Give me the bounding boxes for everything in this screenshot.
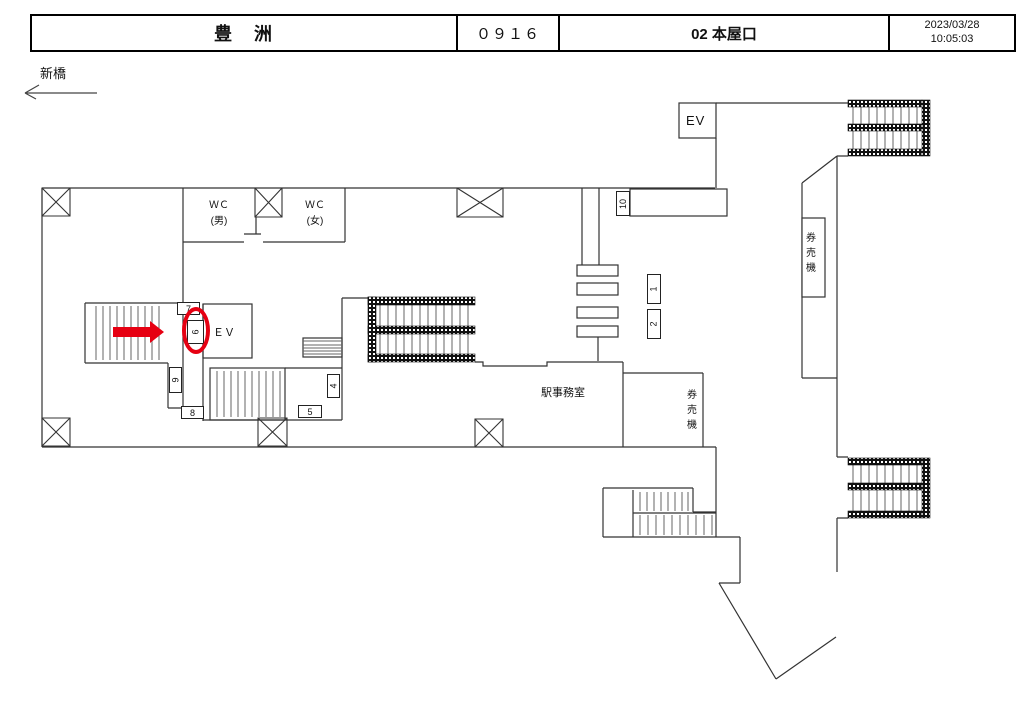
bottom-stair-upper-steps — [640, 492, 688, 511]
time: 10:05:03 — [931, 33, 974, 47]
date: 2023/03/28 — [924, 19, 979, 33]
sign-2: 2 — [647, 309, 661, 339]
exit-name: 02 本屋口 — [560, 16, 890, 50]
direction-label: 新橋 — [40, 64, 66, 85]
sign-8: 8 — [181, 406, 204, 419]
station-office-label: 駅事務室 — [541, 385, 585, 403]
ticket-machine-bottom-label: 券売機 — [687, 388, 700, 433]
sign-9: 9 — [169, 367, 182, 393]
ticket-machine-right-label: 券売機 — [806, 231, 819, 276]
highlight-ellipse — [182, 307, 210, 354]
small-stair-steps — [303, 341, 342, 354]
sign-5: 5 — [298, 405, 322, 418]
middle-stair-steps — [217, 371, 280, 417]
station-map-screen: 豊 洲 ０９１６ 02 本屋口 2023/03/28 10:05:03 新橋 Ｗ… — [0, 0, 1024, 724]
station-code: ０９１６ — [458, 16, 560, 50]
station-name: 豊 洲 — [32, 16, 458, 50]
header-bar: 豊 洲 ０９１６ 02 本屋口 2023/03/28 10:05:03 — [30, 14, 1016, 52]
top-right-escalator — [848, 100, 930, 156]
sign-4: 4 — [327, 374, 340, 398]
wc-women-label: ＷＣ (女) — [290, 198, 340, 230]
bottom-right-escalator — [848, 458, 930, 518]
sign-1: 1 — [647, 274, 661, 304]
direction-arrow — [25, 85, 97, 99]
floorplan-svg — [0, 0, 1024, 724]
elevator-top-label: EV — [686, 111, 705, 132]
wc-men-label: ＷＣ (男) — [194, 198, 244, 230]
sign-10: 10 — [616, 191, 630, 216]
central-escalator — [368, 297, 475, 362]
bottom-stair-lower-steps — [640, 515, 712, 535]
walls — [42, 103, 848, 679]
elevator-left-label: ＥＶ — [213, 325, 235, 343]
datetime: 2023/03/28 10:05:03 — [890, 16, 1014, 50]
